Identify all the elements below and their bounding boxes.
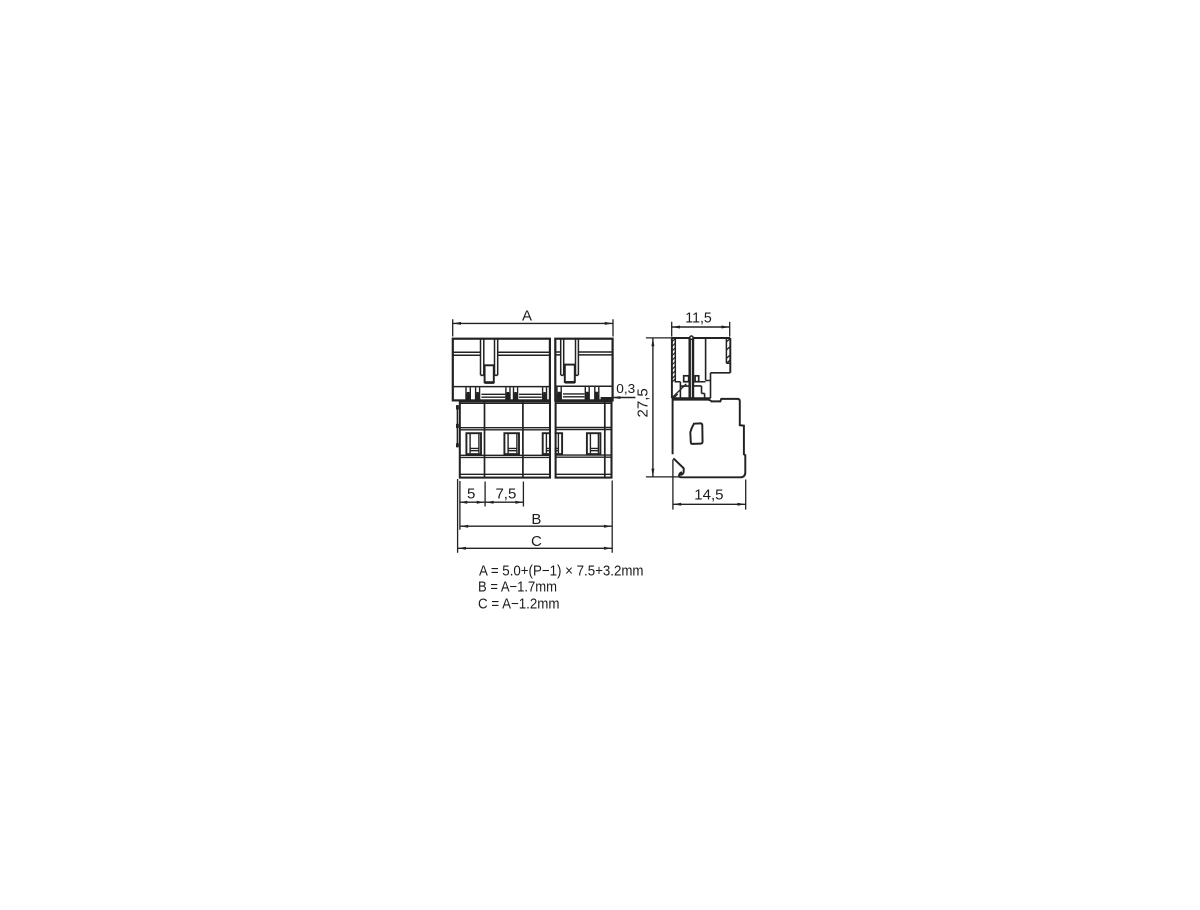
svg-text:A: A <box>522 308 532 325</box>
svg-text:0,3: 0,3 <box>616 382 635 396</box>
svg-text:B: B <box>531 511 541 528</box>
svg-text:27,5: 27,5 <box>635 388 652 417</box>
svg-text:B = A−1.7mm: B = A−1.7mm <box>478 579 557 596</box>
svg-text:A = 5.0+(P−1) × 7.5+3.2mm: A = 5.0+(P−1) × 7.5+3.2mm <box>479 562 644 579</box>
svg-text:14,5: 14,5 <box>694 486 723 503</box>
svg-text:7,5: 7,5 <box>495 485 516 502</box>
svg-text:C: C <box>531 533 542 550</box>
svg-text:11,5: 11,5 <box>685 309 712 326</box>
svg-text:5: 5 <box>467 485 475 502</box>
svg-text:C = A−1.2mm: C = A−1.2mm <box>478 596 560 613</box>
